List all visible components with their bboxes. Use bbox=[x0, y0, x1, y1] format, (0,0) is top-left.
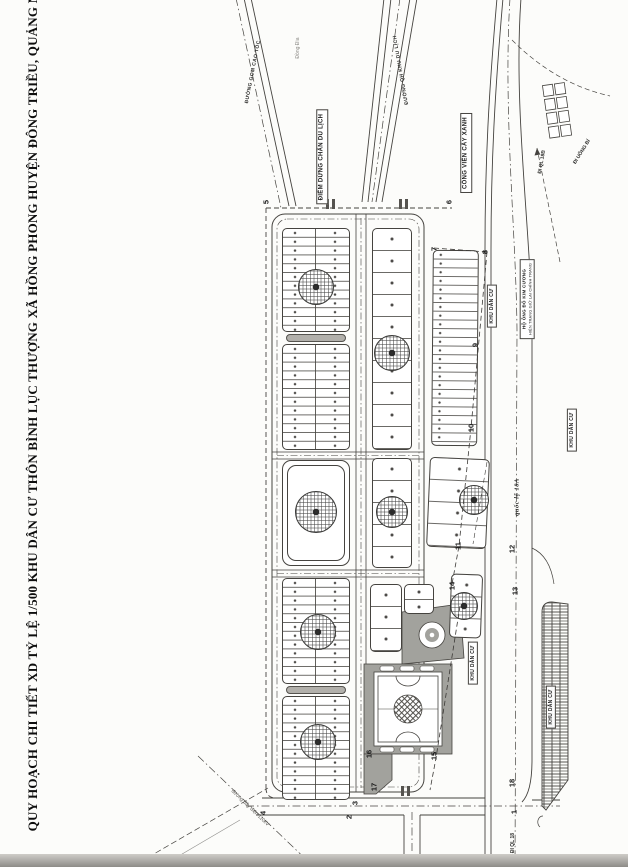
alley-band-2 bbox=[286, 686, 346, 694]
field-center-circle bbox=[394, 695, 422, 723]
boundary-marker: 1 bbox=[510, 810, 519, 814]
direction-ql18-label: ĐI QL 18 bbox=[510, 833, 516, 853]
highway-front-lots bbox=[431, 250, 479, 446]
villa-lots-2 bbox=[404, 584, 434, 614]
residential-area-label: KHU DÂN CƯ bbox=[468, 641, 478, 684]
boundary-marker: 10 bbox=[467, 424, 476, 432]
ramp-and-direction-lines bbox=[512, 40, 610, 262]
scanned-plan-sheet: QUY HOẠCH CHI TIẾT XD TỶ LỆ 1/500 KHU DÂ… bbox=[0, 0, 628, 867]
boundary-marker: 5 bbox=[262, 200, 271, 204]
park-center-circle-icon bbox=[295, 491, 337, 533]
boundary-marker: 9 bbox=[471, 343, 480, 347]
villa-lots-1 bbox=[370, 584, 402, 652]
highway-label: quốc lộ 18A bbox=[514, 478, 521, 516]
boundary-marker: 18 bbox=[508, 779, 517, 787]
residential-area-label: KHU DÂN CƯ bbox=[546, 685, 556, 728]
alley-band-1 bbox=[286, 334, 346, 342]
boundary-marker: 6 bbox=[445, 200, 454, 204]
planted-circle-icon bbox=[376, 496, 408, 528]
planted-circle-icon bbox=[300, 614, 336, 650]
place-name-label: Đồng Đìa bbox=[295, 37, 301, 58]
residential-area-label: KHU DÂN CƯ bbox=[487, 284, 497, 327]
household-note-line2: HIỆN TRẠNG GIỮ LẠI CHỈNH TRANG bbox=[527, 263, 532, 335]
boundary-marker: 3 bbox=[351, 801, 360, 805]
planted-circle-icon bbox=[298, 269, 334, 305]
boundary-marker: 7 bbox=[430, 247, 439, 251]
housing-block-A2 bbox=[282, 344, 350, 450]
boundary-marker: 8 bbox=[481, 250, 490, 254]
boundary-marker: 14 bbox=[448, 582, 457, 590]
residential-area-label: KHU DÂN CƯ bbox=[567, 408, 577, 451]
tourist-rest-stop-label: ĐIỂM DỪNG CHÂN DU LỊCH bbox=[316, 110, 328, 205]
household-note-label: HỘ ÔNG ĐỖ KIM CƯƠNG HIỆN TRẠNG GIỮ LẠI C… bbox=[520, 259, 535, 339]
planted-circle-icon bbox=[374, 335, 410, 371]
green-park-label: CÔNG VIÊN CÂY XANH bbox=[460, 113, 472, 193]
boundary-marker: 2 bbox=[345, 815, 354, 819]
planted-circle-icon bbox=[300, 724, 336, 760]
household-note-line1: HỘ ÔNG ĐỖ KIM CƯƠNG bbox=[522, 269, 527, 329]
planted-circle-icon bbox=[459, 485, 489, 515]
boundary-marker: 4 bbox=[259, 811, 268, 815]
existing-houses-cluster bbox=[542, 83, 571, 139]
scan-edge-shadow bbox=[0, 854, 628, 867]
boundary-marker: 15 bbox=[430, 752, 439, 760]
boundary-marker: 12 bbox=[508, 545, 517, 553]
boundary-marker: 16 bbox=[365, 750, 374, 758]
expressway-left-road bbox=[236, 0, 296, 208]
sheet-title: QUY HOẠCH CHI TIẾT XD TỶ LỆ 1/500 KHU DÂ… bbox=[25, 0, 41, 831]
planted-circle-icon bbox=[450, 592, 478, 620]
boundary-marker: 11 bbox=[454, 542, 463, 550]
boundary-marker: 17 bbox=[370, 783, 379, 791]
boundary-marker: 13 bbox=[511, 587, 520, 595]
